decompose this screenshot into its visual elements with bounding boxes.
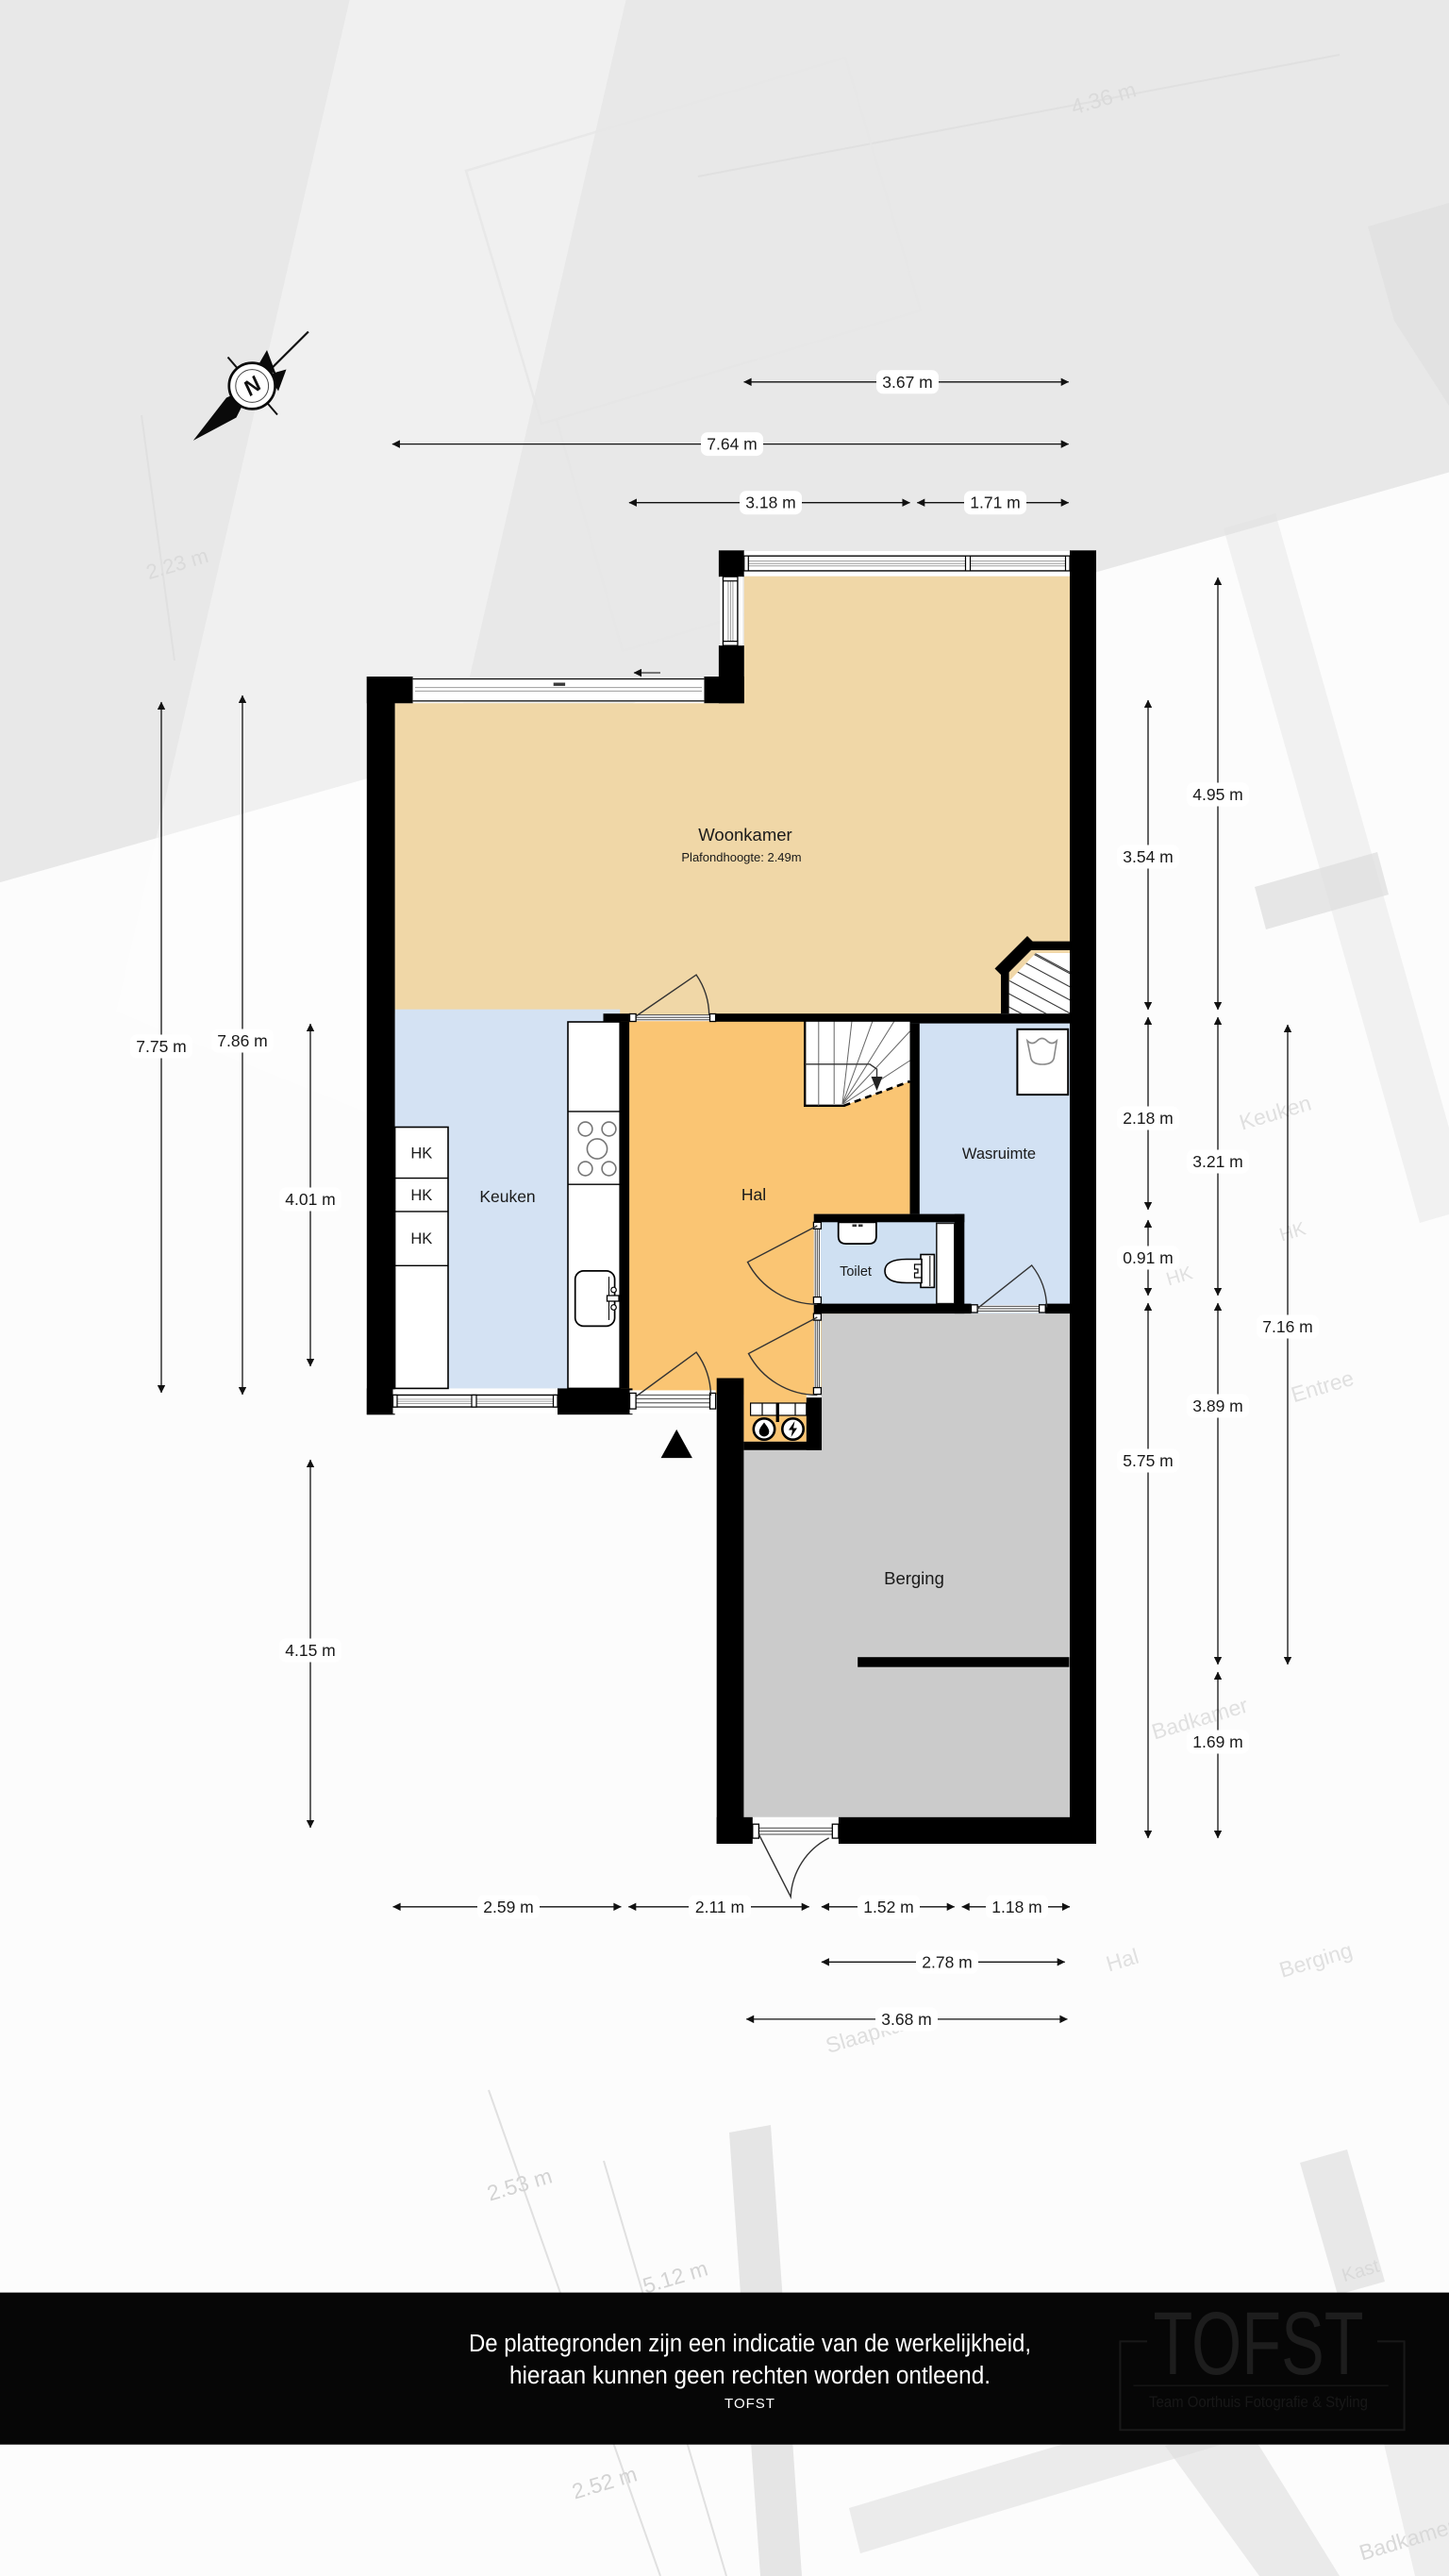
svg-text:7.86 m: 7.86 m [217,1031,268,1050]
svg-text:5.75 m: 5.75 m [1123,1451,1174,1470]
svg-text:7.64 m: 7.64 m [707,435,758,454]
svg-text:1.52 m: 1.52 m [863,1898,914,1916]
svg-text:7.16 m: 7.16 m [1262,1317,1313,1336]
svg-text:2.11 m: 2.11 m [695,1898,744,1916]
svg-text:Plafondhoogte: 2.49m: Plafondhoogte: 2.49m [681,850,801,864]
svg-text:1.69 m: 1.69 m [1192,1732,1243,1751]
svg-text:TOFST: TOFST [724,2396,775,2412]
svg-text:Hal: Hal [741,1185,766,1204]
svg-text:3.67 m: 3.67 m [882,373,933,392]
svg-text:TOFST: TOFST [1154,2294,1364,2394]
svg-text:De plattegronden zijn een indi: De plattegronden zijn een indicatie van … [469,2331,1031,2357]
svg-text:3.68 m: 3.68 m [881,2010,932,2029]
svg-text:2.18 m: 2.18 m [1123,1109,1174,1128]
svg-text:Toilet: Toilet [840,1264,872,1280]
svg-text:Berging: Berging [884,1568,944,1588]
svg-text:4.95 m: 4.95 m [1192,785,1243,804]
svg-text:HK: HK [410,1146,432,1163]
svg-text:hieraan kunnen geen rechten wo: hieraan kunnen geen rechten worden ontle… [509,2363,991,2389]
svg-text:1.71 m: 1.71 m [970,493,1021,512]
svg-text:Team Oorthuis Fotografie & Sty: Team Oorthuis Fotografie & Styling [1149,2393,1368,2411]
svg-text:3.21 m: 3.21 m [1192,1152,1243,1171]
svg-text:Wasruimte: Wasruimte [962,1146,1036,1163]
svg-text:3.18 m: 3.18 m [745,493,796,512]
svg-text:3.89 m: 3.89 m [1192,1397,1243,1415]
svg-text:HK: HK [410,1230,432,1247]
svg-text:Woonkamer: Woonkamer [698,825,791,845]
svg-text:Keuken: Keuken [479,1187,535,1206]
svg-text:2.59 m: 2.59 m [483,1898,534,1916]
svg-text:HK: HK [410,1187,432,1204]
svg-text:4.01 m: 4.01 m [285,1190,336,1209]
svg-text:2.78 m: 2.78 m [922,1952,973,1971]
svg-text:1.18 m: 1.18 m [991,1898,1042,1916]
svg-text:4.15 m: 4.15 m [285,1641,336,1660]
svg-text:7.75 m: 7.75 m [136,1037,187,1056]
svg-text:3.54 m: 3.54 m [1123,847,1174,866]
svg-text:0.91 m: 0.91 m [1123,1248,1174,1267]
